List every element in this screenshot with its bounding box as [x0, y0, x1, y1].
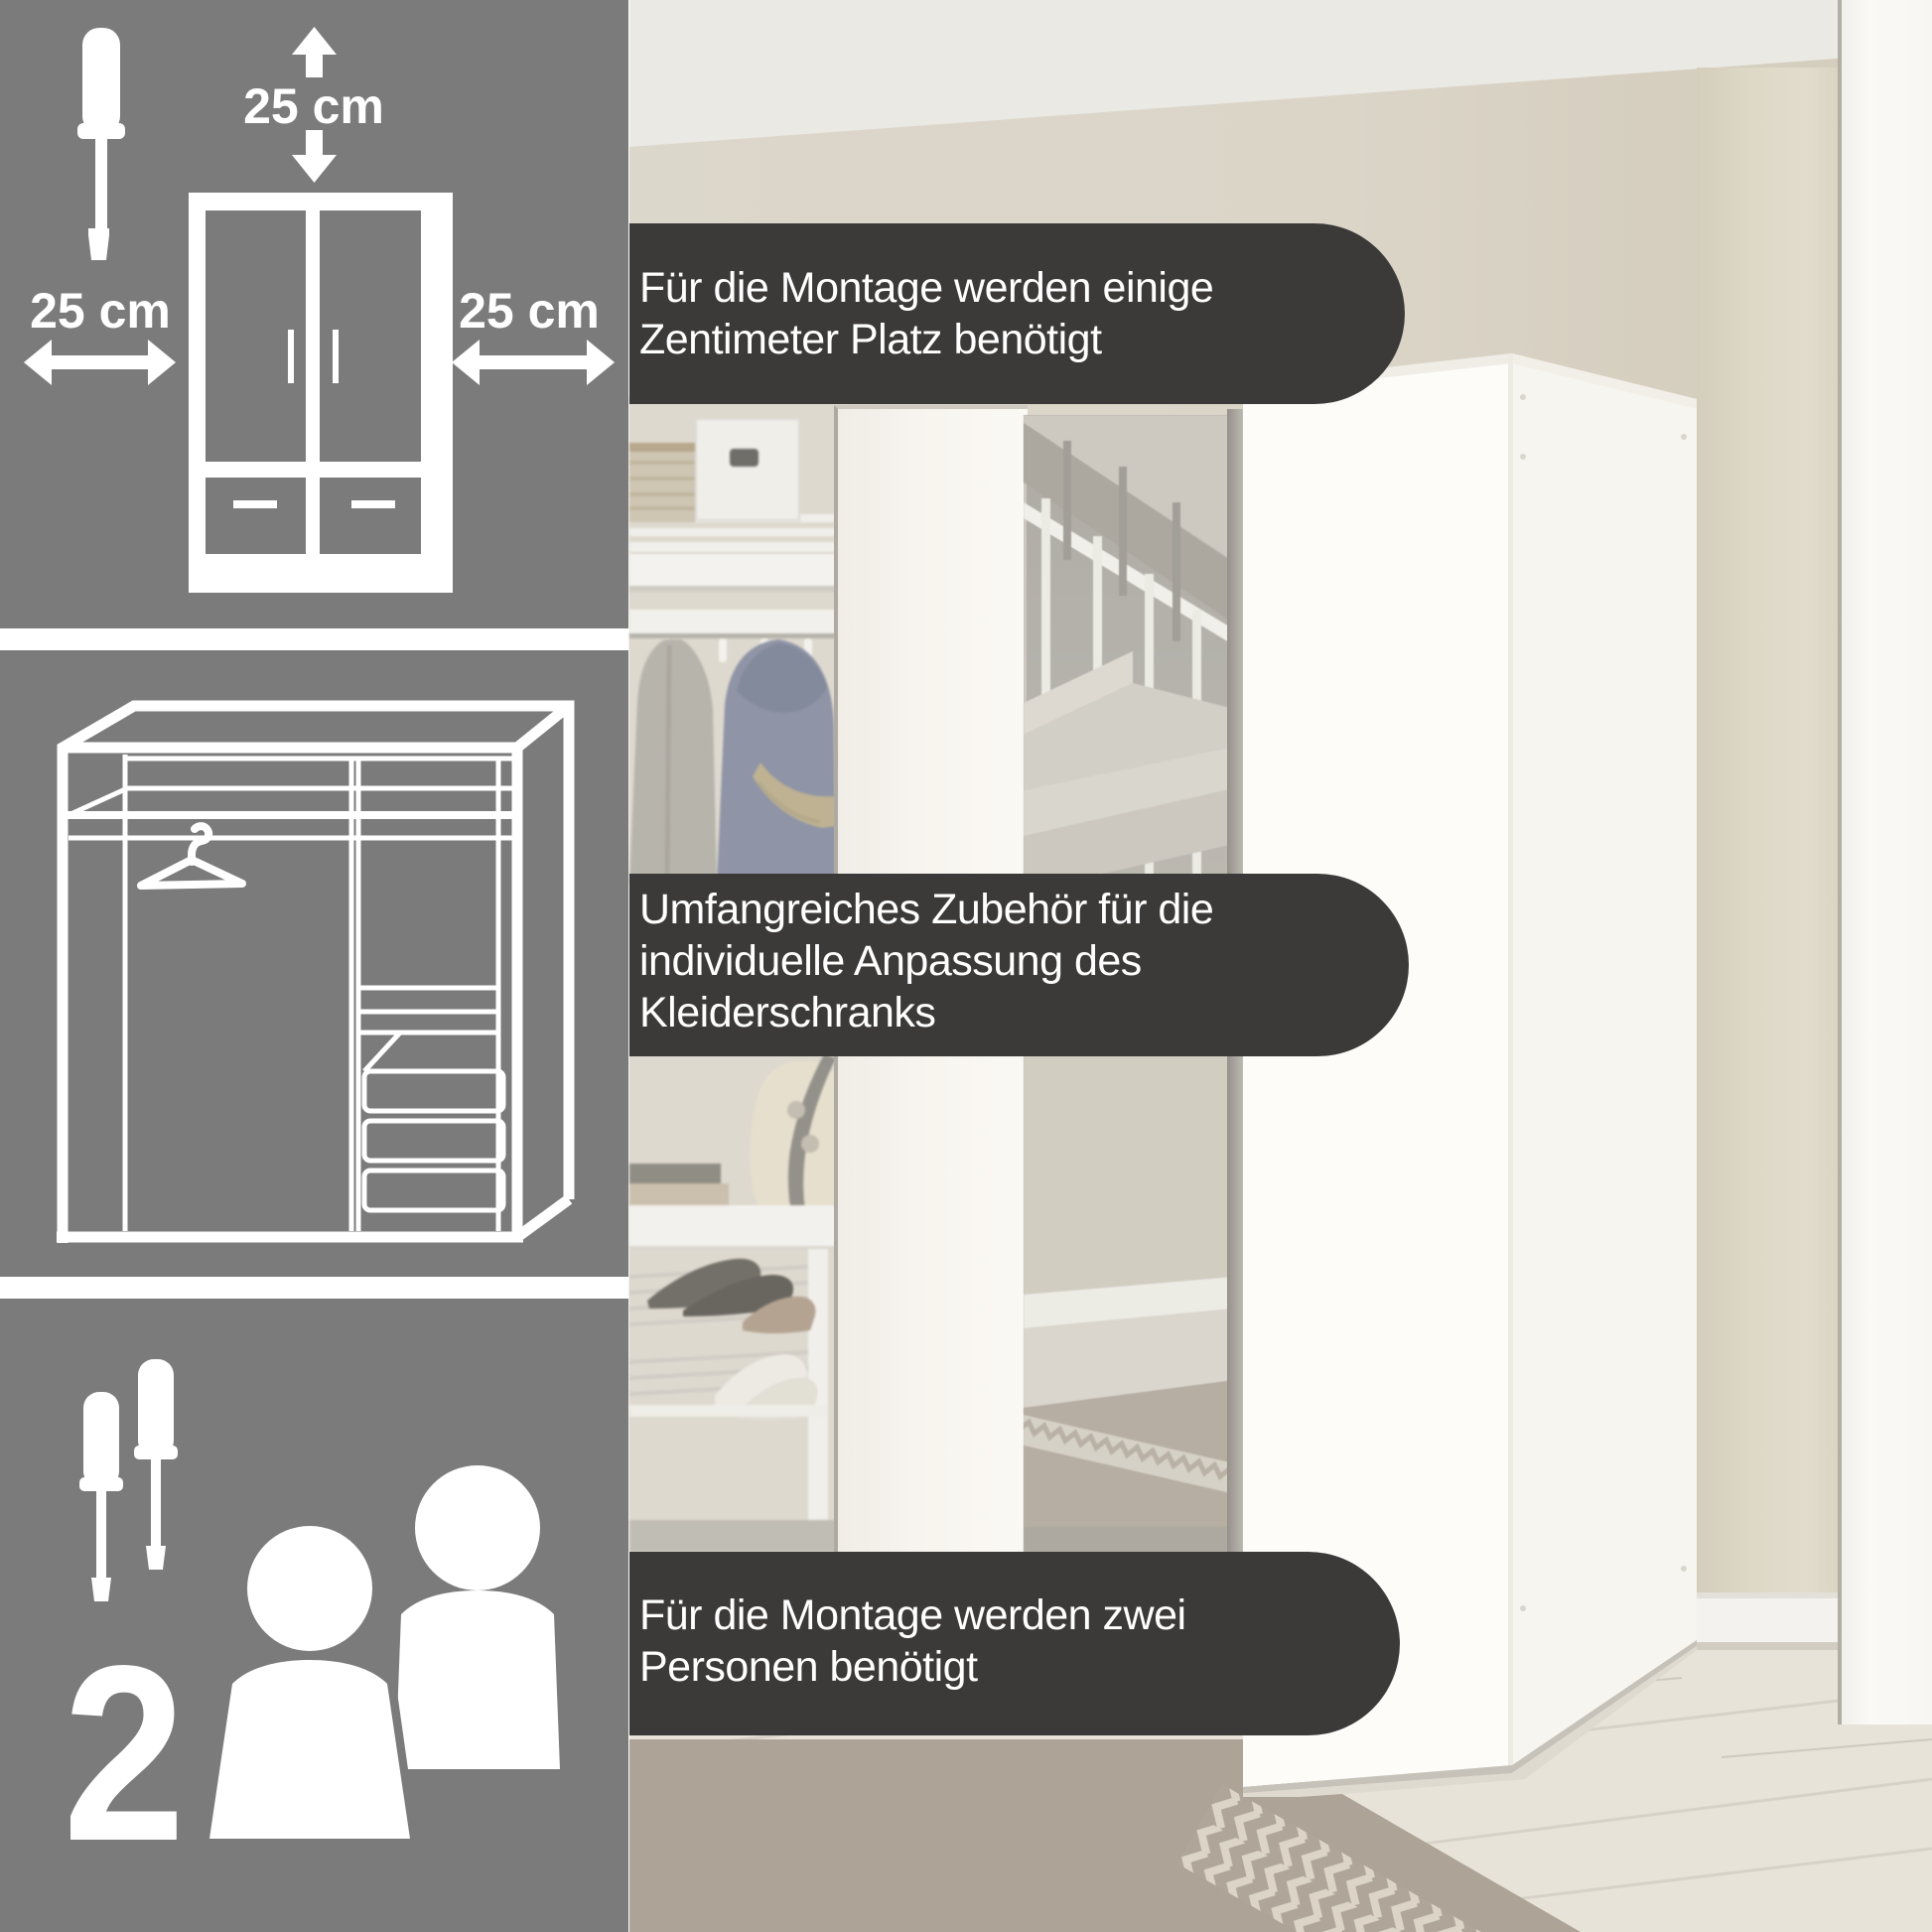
svg-text:25 cm: 25 cm — [459, 283, 600, 339]
svg-text:2: 2 — [63, 1614, 185, 1893]
svg-text:25 cm: 25 cm — [30, 283, 171, 339]
svg-text:25 cm: 25 cm — [243, 78, 384, 134]
